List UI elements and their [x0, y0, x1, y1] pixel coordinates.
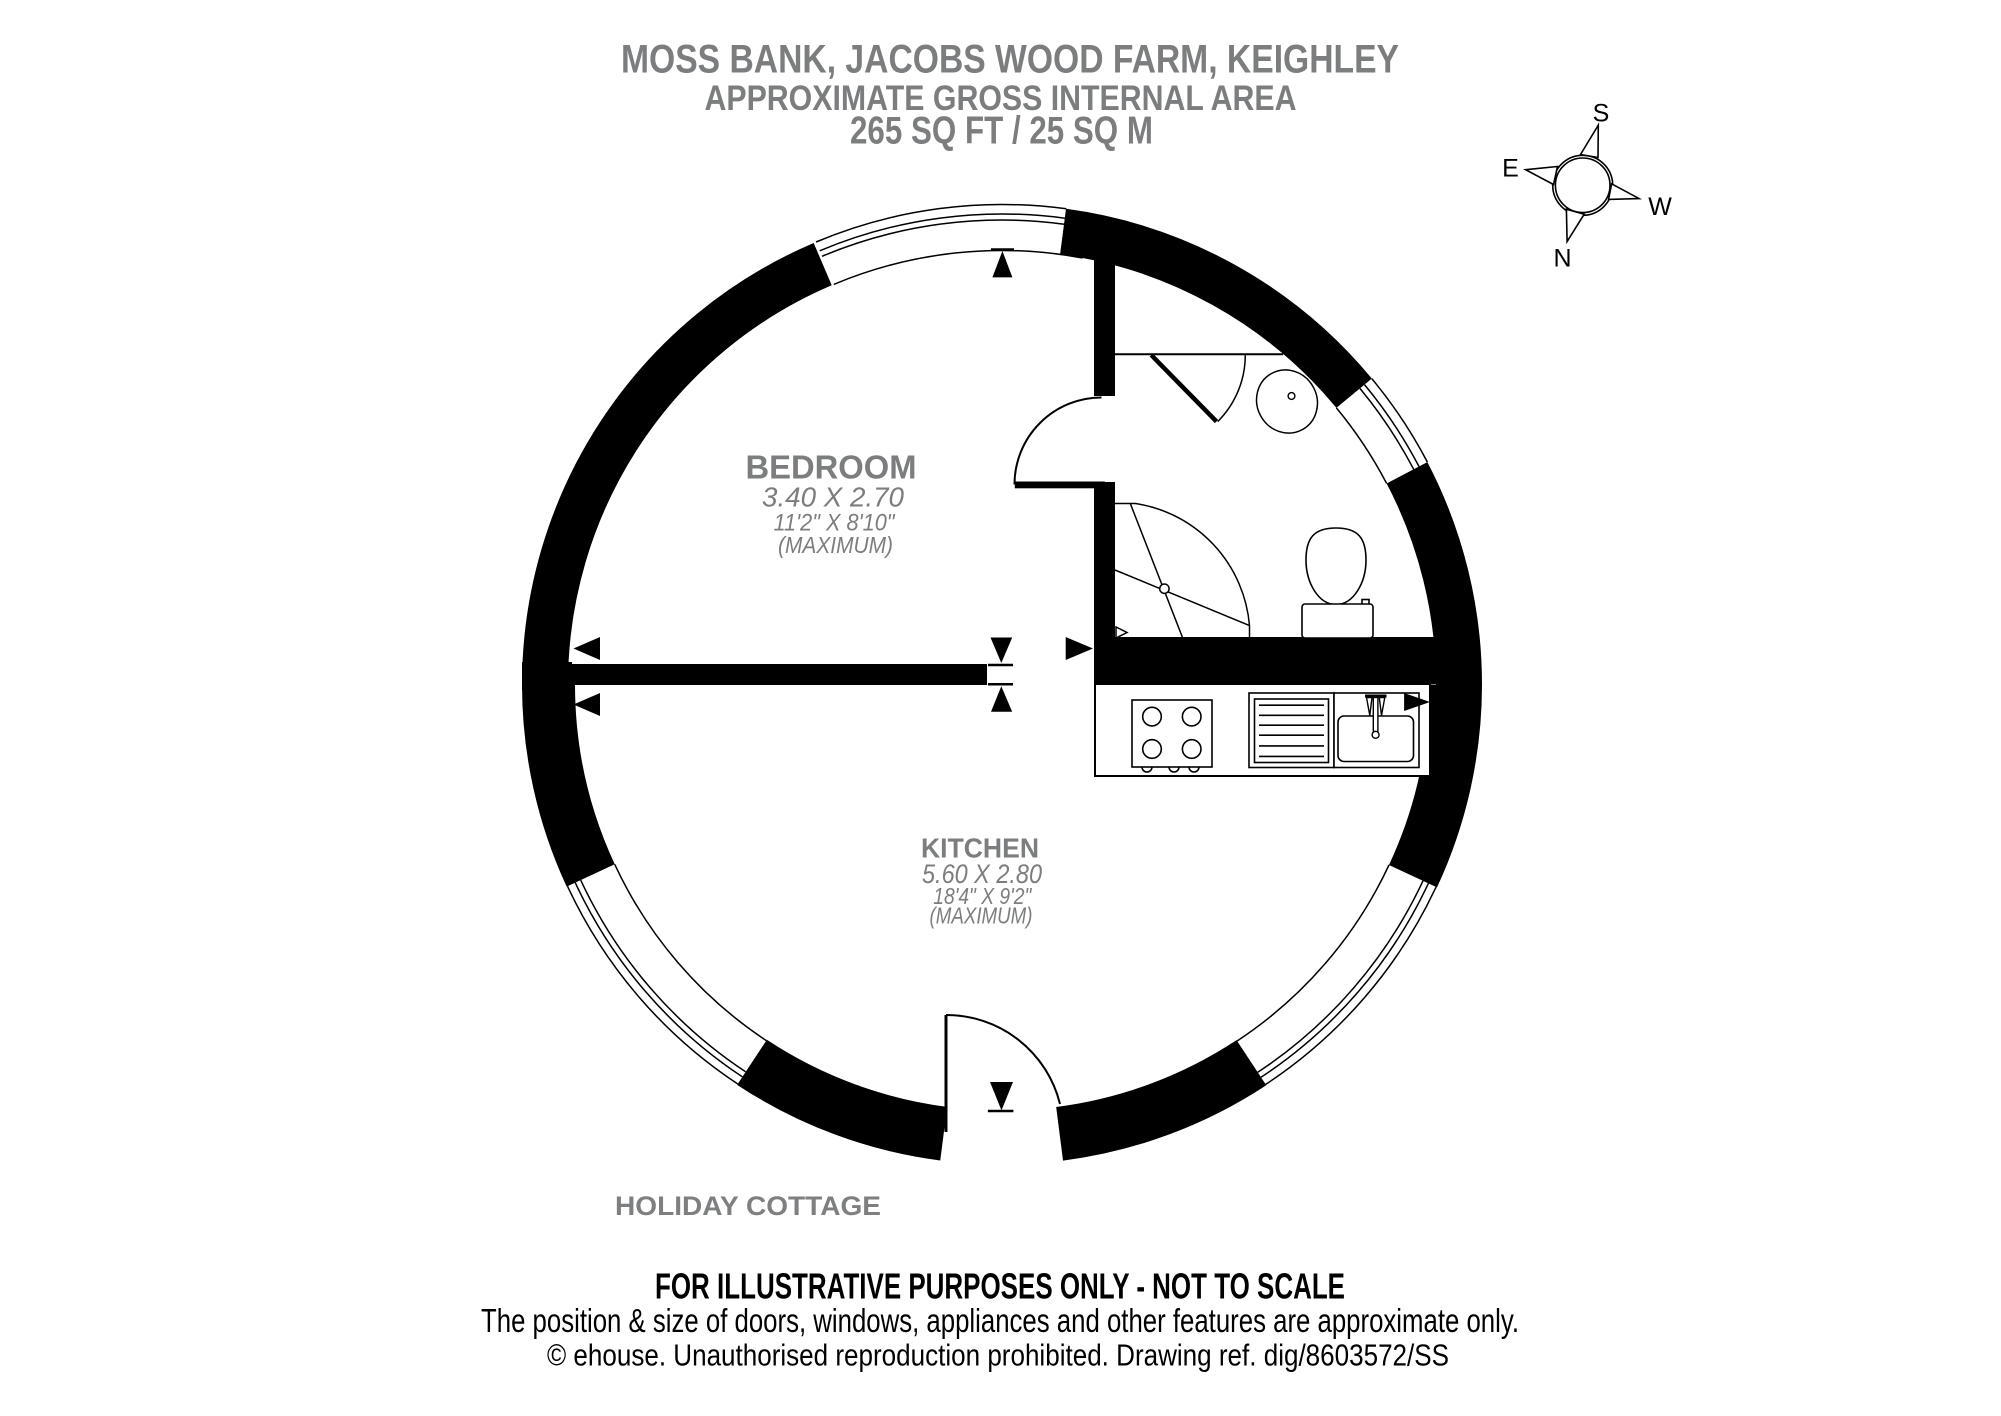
svg-text:© ehouse. Unauthorised reprodu: © ehouse. Unauthorised reproduction proh… — [547, 1338, 1449, 1373]
svg-text:265 SQ FT / 25 SQ M: 265 SQ FT / 25 SQ M — [850, 110, 1153, 153]
svg-text:BEDROOM: BEDROOM — [746, 449, 917, 486]
svg-text:FOR ILLUSTRATIVE PURPOSES ONLY: FOR ILLUSTRATIVE PURPOSES ONLY - NOT TO … — [655, 1266, 1345, 1307]
svg-text:HOLIDAY COTTAGE: HOLIDAY COTTAGE — [615, 1191, 881, 1221]
svg-text:3.40 X 2.70: 3.40 X 2.70 — [762, 482, 904, 513]
svg-text:S: S — [1593, 100, 1610, 128]
svg-text:(MAXIMUM): (MAXIMUM) — [778, 532, 893, 558]
svg-text:E: E — [1502, 155, 1519, 183]
svg-text:MOSS BANK, JACOBS WOOD FARM, K: MOSS BANK, JACOBS WOOD FARM, KEIGHLEY — [621, 38, 1399, 82]
svg-text:The position & size of doors,: The position & size of doors, windows, a… — [481, 1302, 1519, 1339]
svg-text:W: W — [1648, 193, 1672, 221]
svg-text:N: N — [1553, 245, 1571, 273]
svg-text:(MAXIMUM): (MAXIMUM) — [930, 902, 1033, 928]
